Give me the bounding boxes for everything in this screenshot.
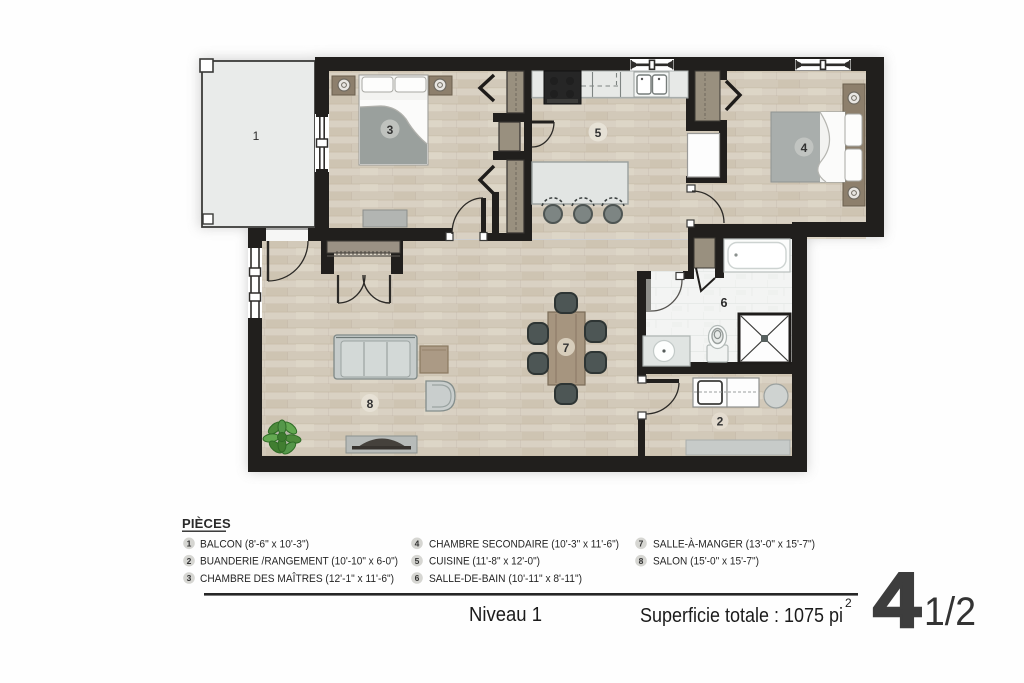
svg-text:6: 6 bbox=[721, 296, 728, 310]
svg-text:2: 2 bbox=[845, 596, 852, 610]
svg-text:8: 8 bbox=[367, 397, 374, 411]
svg-text:PIÈCES: PIÈCES bbox=[182, 516, 231, 531]
svg-text:2: 2 bbox=[187, 556, 192, 566]
svg-text:6: 6 bbox=[415, 573, 420, 583]
svg-text:SALON (15'-0" x 15'-7"): SALON (15'-0" x 15'-7") bbox=[653, 556, 759, 568]
svg-text:1: 1 bbox=[187, 539, 192, 549]
svg-text:SALLE-À-MANGER (13'-0" x 15'-7: SALLE-À-MANGER (13'-0" x 15'-7") bbox=[653, 537, 815, 550]
svg-text:5: 5 bbox=[415, 556, 420, 566]
svg-text:4: 4 bbox=[415, 539, 420, 549]
svg-text:2: 2 bbox=[717, 415, 724, 429]
svg-text:1/2: 1/2 bbox=[924, 590, 976, 634]
svg-text:1: 1 bbox=[253, 129, 260, 143]
svg-text:5: 5 bbox=[595, 126, 602, 140]
svg-text:CHAMBRE DES MAÎTRES (12'-1" x: CHAMBRE DES MAÎTRES (12'-1" x 11'-6") bbox=[200, 572, 394, 585]
svg-text:CUISINE (11'-8" x 12'-0"): CUISINE (11'-8" x 12'-0") bbox=[429, 556, 540, 568]
svg-text:4: 4 bbox=[801, 141, 808, 155]
svg-text:7: 7 bbox=[563, 341, 570, 355]
svg-text:8: 8 bbox=[639, 556, 644, 566]
svg-text:SALLE-DE-BAIN (10'-11" x 8'-11: SALLE-DE-BAIN (10'-11" x 8'-11") bbox=[429, 573, 582, 585]
svg-text:Niveau 1: Niveau 1 bbox=[469, 603, 542, 626]
svg-text:3: 3 bbox=[187, 573, 192, 583]
svg-text:CHAMBRE SECONDAIRE (10'-3" x 1: CHAMBRE SECONDAIRE (10'-3" x 11'-6") bbox=[429, 538, 619, 550]
svg-text:BALCON (8'-6" x 10'-3"): BALCON (8'-6" x 10'-3") bbox=[200, 538, 309, 550]
svg-text:3: 3 bbox=[387, 123, 394, 137]
svg-text:Superficie totale : 1075 pi: Superficie totale : 1075 pi bbox=[640, 604, 843, 627]
svg-text:BUANDERIE /RANGEMENT (10'-10": BUANDERIE /RANGEMENT (10'-10" x 6-0") bbox=[200, 556, 398, 568]
svg-text:7: 7 bbox=[639, 539, 644, 549]
svg-text:4: 4 bbox=[873, 556, 921, 644]
